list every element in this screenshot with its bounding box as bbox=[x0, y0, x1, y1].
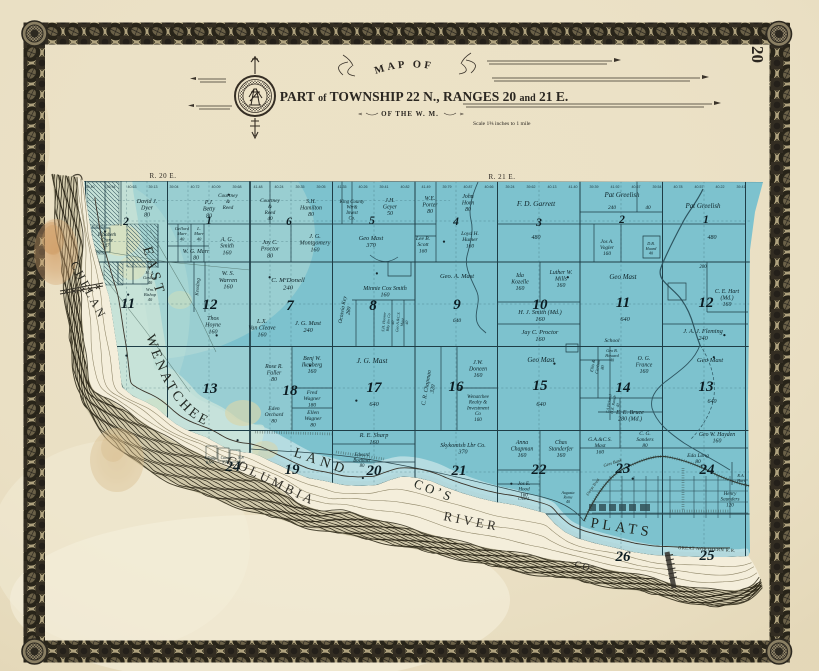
svg-text:F. D. Garrett: F. D. Garrett bbox=[516, 199, 556, 208]
svg-text:40: 40 bbox=[645, 205, 651, 211]
svg-text:39.94: 39.94 bbox=[107, 185, 116, 189]
svg-text:School: School bbox=[604, 338, 620, 344]
svg-text:OF THE W. M.: OF THE W. M. bbox=[381, 110, 439, 118]
svg-text:R. 20 E.: R. 20 E. bbox=[150, 172, 177, 180]
svg-text:Geo Mast: Geo Mast bbox=[609, 273, 637, 281]
svg-text:20: 20 bbox=[748, 46, 767, 63]
svg-text:39.35: 39.35 bbox=[296, 185, 305, 189]
svg-text:200: 200 bbox=[699, 265, 707, 270]
svg-text:39.54: 39.54 bbox=[653, 185, 662, 189]
svg-text:39.04: 39.04 bbox=[170, 185, 179, 189]
svg-text:8: 8 bbox=[369, 298, 377, 314]
svg-text:16: 16 bbox=[449, 379, 465, 395]
svg-text:39.13: 39.13 bbox=[149, 185, 158, 189]
svg-text:640: 640 bbox=[453, 317, 462, 324]
svg-text:E. E. Bruce280 (Md.): E. E. Bruce280 (Md.) bbox=[615, 410, 644, 423]
svg-text:17: 17 bbox=[367, 380, 383, 396]
svg-text:21: 21 bbox=[451, 463, 467, 479]
svg-text:40.22: 40.22 bbox=[716, 185, 725, 189]
svg-text:20: 20 bbox=[366, 463, 383, 479]
svg-text:39.24: 39.24 bbox=[506, 185, 515, 189]
svg-text:40.26: 40.26 bbox=[359, 185, 368, 189]
svg-text:40.72: 40.72 bbox=[191, 185, 200, 189]
svg-text:Geo. A. Mast: Geo. A. Mast bbox=[440, 273, 474, 280]
svg-text:40.78: 40.78 bbox=[674, 185, 683, 189]
svg-text:39.79: 39.79 bbox=[443, 185, 452, 189]
svg-text:39.39: 39.39 bbox=[590, 185, 599, 189]
svg-text:12: 12 bbox=[699, 295, 715, 311]
svg-text:CANAL: CANAL bbox=[518, 497, 530, 501]
svg-text:19: 19 bbox=[285, 462, 301, 478]
svg-text:12: 12 bbox=[203, 297, 219, 313]
svg-text:J. G. Mast: J. G. Mast bbox=[357, 356, 389, 365]
svg-text:18: 18 bbox=[283, 383, 299, 399]
svg-text:40.67: 40.67 bbox=[632, 185, 641, 189]
svg-text:40.63: 40.63 bbox=[128, 185, 137, 189]
svg-text:24: 24 bbox=[699, 462, 716, 478]
svg-text:13: 13 bbox=[203, 381, 219, 397]
svg-text:4: 4 bbox=[452, 216, 459, 228]
svg-text:R.A.Hurt: R.A.Hurt bbox=[736, 473, 746, 483]
svg-text:13: 13 bbox=[699, 379, 715, 395]
svg-text:640: 640 bbox=[707, 398, 716, 405]
svg-text:480: 480 bbox=[531, 234, 540, 241]
svg-text:41.92: 41.92 bbox=[611, 185, 620, 189]
svg-text:11: 11 bbox=[616, 295, 630, 311]
svg-text:40.66: 40.66 bbox=[485, 185, 494, 189]
svg-text:39.05: 39.05 bbox=[317, 185, 326, 189]
svg-text:15: 15 bbox=[533, 378, 549, 394]
svg-text:7: 7 bbox=[286, 298, 294, 314]
svg-text:640: 640 bbox=[536, 401, 546, 408]
svg-text:Scale 1⅝ inches to 1 mile: Scale 1⅝ inches to 1 mile bbox=[473, 121, 531, 127]
svg-text:240: 240 bbox=[608, 205, 616, 211]
svg-text:22: 22 bbox=[531, 462, 548, 478]
svg-text:11: 11 bbox=[121, 296, 135, 312]
svg-text:Geo Mast: Geo Mast bbox=[527, 356, 555, 364]
svg-text:39.40: 39.40 bbox=[86, 185, 95, 189]
svg-text:Pat Greelish: Pat Greelish bbox=[603, 191, 640, 199]
svg-text:40.57: 40.57 bbox=[695, 185, 704, 189]
svg-text:3: 3 bbox=[535, 217, 542, 229]
svg-text:R. 21 E.: R. 21 E. bbox=[489, 173, 516, 181]
svg-text:5: 5 bbox=[369, 215, 375, 227]
svg-text:41.49: 41.49 bbox=[422, 185, 431, 189]
svg-text:40.13: 40.13 bbox=[548, 185, 557, 189]
svg-text:40.87: 40.87 bbox=[464, 185, 473, 189]
svg-text:2: 2 bbox=[122, 216, 129, 228]
svg-text:39.62: 39.62 bbox=[527, 185, 536, 189]
svg-text:40.24: 40.24 bbox=[275, 185, 284, 189]
svg-text:1: 1 bbox=[703, 214, 709, 226]
svg-text:39.41: 39.41 bbox=[380, 185, 389, 189]
svg-text:40.82: 40.82 bbox=[401, 185, 410, 189]
svg-text:26: 26 bbox=[615, 549, 632, 565]
svg-text:41.35: 41.35 bbox=[338, 185, 347, 189]
svg-text:640: 640 bbox=[369, 401, 379, 408]
svg-text:39.68: 39.68 bbox=[233, 185, 242, 189]
svg-text:39.41: 39.41 bbox=[737, 185, 746, 189]
svg-text:40.09: 40.09 bbox=[212, 185, 221, 189]
svg-text:9: 9 bbox=[453, 297, 461, 313]
svg-text:640: 640 bbox=[620, 316, 630, 323]
svg-text:41.40: 41.40 bbox=[569, 185, 578, 189]
svg-text:41.48: 41.48 bbox=[254, 185, 263, 189]
svg-text:2: 2 bbox=[618, 214, 625, 226]
svg-text:Geo Mast: Geo Mast bbox=[697, 357, 723, 364]
svg-text:Pat Greelish: Pat Greelish bbox=[684, 202, 721, 210]
svg-text:6: 6 bbox=[286, 216, 292, 228]
svg-text:480: 480 bbox=[707, 234, 716, 241]
svg-text:14: 14 bbox=[616, 380, 632, 396]
